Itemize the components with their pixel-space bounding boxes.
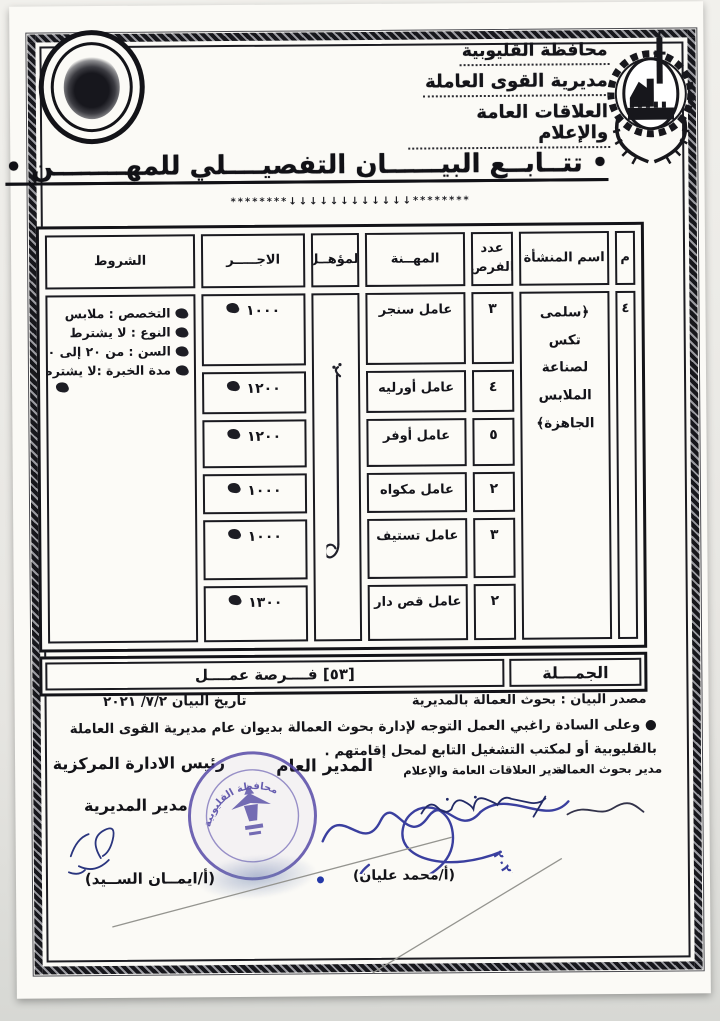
statement-source: مصدر البيان : بحوث العمالة بالمديرية (345, 692, 647, 709)
serial-cell: ٤ (615, 291, 638, 639)
header-org-block: محافظة القليوبية مديرية القوى العاملة ال… (407, 40, 610, 155)
ink-mark-icon (175, 364, 189, 376)
blue-dot-mark (317, 876, 324, 883)
ink-mark-icon (175, 345, 189, 357)
round-seal-icon (38, 30, 145, 145)
wage-value: ١٠٠٠ (246, 303, 280, 319)
org-line-manpower: مديرية القوى العاملة (423, 70, 610, 97)
col-header-openings: عدد الفرص (471, 232, 513, 286)
condition-line: السن : من ٢٠ إلى ٣٠ (54, 343, 188, 359)
org-line-pr-media: العلاقات العامة والإعلام (408, 101, 610, 150)
seal-center-emblem (63, 55, 120, 119)
openings-cell: ٤ (472, 370, 514, 412)
condition-text: النوع : لا يشترط (70, 324, 171, 340)
condition-text: التخصص : ملابس (65, 305, 171, 321)
ink-mark-icon (227, 428, 241, 440)
openings-cell: ٢ (474, 584, 516, 640)
name-mohamed-elian: (أ/محمد عليان) (334, 867, 474, 884)
col-header-qualification: المؤهــل (311, 233, 359, 287)
wage-value: ١٠٠٠ (247, 483, 281, 499)
col-header-establishment: اسم المنشأة (519, 231, 609, 286)
handwritten-qualification-mark-icon (325, 362, 349, 572)
org-line-governorate: محافظة القليوبية (460, 40, 610, 66)
profession-cell: عامل قص دار (368, 584, 468, 641)
wage-cell: ١٢٠٠ (202, 419, 306, 468)
total-row: الجمـــلة [٥٣] فــــرصة عمــــل (39, 652, 647, 697)
ink-mark-icon (227, 380, 241, 392)
total-label: الجمـــلة (509, 658, 641, 687)
pr-media-signature (415, 790, 565, 829)
ink-mark-icon (228, 482, 242, 494)
wage-cell: ١٢٠٠ (202, 371, 306, 414)
wage-cell: ١٠٠٠ (203, 519, 307, 580)
col-header-profession: المهــنة (365, 232, 465, 287)
wage-cell: ١٠٠٠ (203, 473, 307, 514)
openings-cell: ٥ (472, 418, 514, 466)
wage-cell: ١٣٠٠ (204, 585, 308, 642)
openings-cell: ٣ (471, 292, 514, 364)
total-value: [٥٣] فــــرصة عمــــل (45, 659, 504, 691)
governorate-emblem-icon (605, 31, 696, 172)
jobs-table: م اسم المنشأة عدد الفرص المهــنة المؤهــ… (36, 222, 647, 653)
labor-research-signature (563, 800, 648, 823)
openings-cell: ٢ (473, 472, 515, 512)
condition-text: السن : من ٢٠ إلى ٣٠ (45, 343, 170, 359)
profession-cell: عامل سنجر (365, 292, 466, 365)
wage-value: ١٣٠٠ (248, 595, 282, 611)
ink-mark-icon (55, 381, 69, 393)
statement-date: تاريخ البيان ٧/٢/ ٢٠٢١ (57, 693, 247, 710)
profession-cell: عامل أورليه (366, 370, 466, 413)
condition-tail-mark (54, 381, 188, 392)
condition-line: التخصص : ملابس (53, 305, 187, 321)
ink-mark-icon (175, 307, 189, 319)
condition-line: النوع : لا يشترط (54, 324, 188, 340)
qualification-cell (311, 293, 362, 641)
openings-cell: ٣ (473, 518, 515, 578)
ink-mark-icon (228, 528, 242, 540)
col-header-conditions: الشروط (45, 234, 195, 289)
profession-cell: عامل أوفر (366, 418, 466, 467)
wage-cell: ١٠٠٠ (201, 293, 306, 366)
wage-value: ١٠٠٠ (248, 529, 282, 545)
wage-value: ١٢٠٠ (247, 429, 281, 445)
ink-mark-icon (175, 326, 189, 338)
ink-mark-icon (226, 302, 240, 314)
directorate-manager-signature (60, 818, 155, 877)
scanned-document-background: { "document": { "org": { "lines": ["محاف… (0, 0, 720, 1021)
page-title: • تتــابــع البيــــــان التفصيــــلي لل… (80, 148, 608, 182)
document-page: محافظة القليوبية مديرية القوى العاملة ال… (9, 1, 711, 998)
conditions-cell: التخصص : ملابس النوع : لا يشترط السن : م… (45, 294, 198, 643)
col-header-serial: م (615, 231, 635, 285)
wage-value: ١٢٠٠ (246, 381, 280, 397)
col-header-wage: الاجـــــر (201, 233, 305, 288)
ink-mark-icon (228, 594, 242, 606)
condition-line: مدة الخبرة :لا يشترط (54, 362, 188, 378)
signature-year: ٢٠٢١ (489, 849, 517, 875)
profession-cell: عامل مكواه (367, 472, 467, 513)
title-labor-research-director: مدير بحوث العمالة (562, 762, 662, 777)
profession-cell: عامل تستيف (367, 518, 467, 579)
condition-text: مدة الخبرة :لا يشترط (45, 362, 171, 378)
name-iman-elsayed: (أ/ايمــان الســيد) (61, 869, 239, 888)
establishment-cell: ﴿سلمى تكس لصناعة الملابس الجاهزة﴾ (519, 291, 612, 640)
